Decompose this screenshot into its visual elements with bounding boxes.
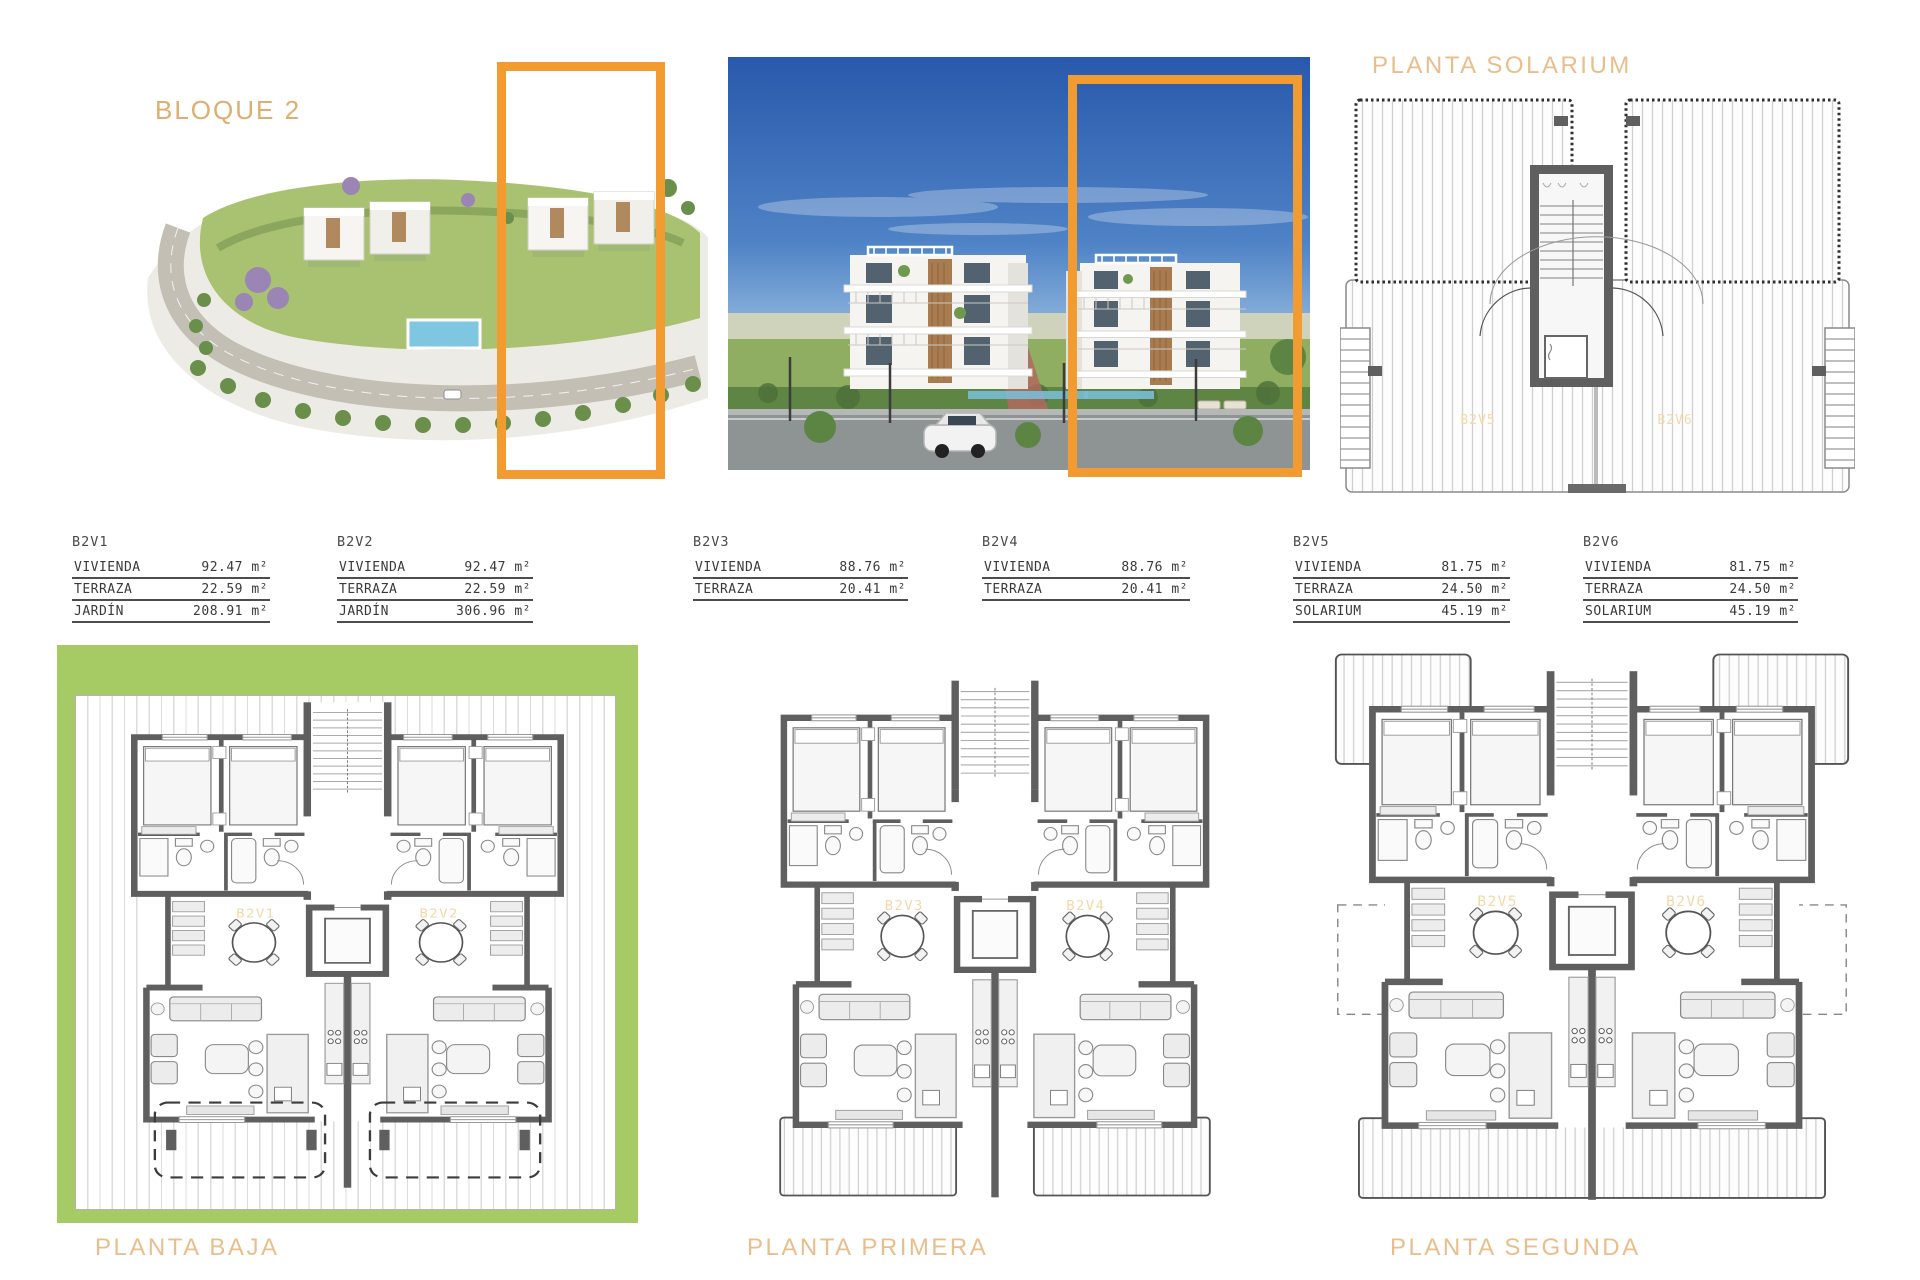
- unit-id: B2V6: [1583, 534, 1798, 550]
- floor-plan-baja-garden: B2V1 B2V2: [57, 645, 638, 1223]
- baja-left-unit-label: B2V1: [236, 907, 275, 921]
- table-row: TERRAZA 24.50 m²: [1583, 579, 1798, 601]
- floor-plan-baja-svg: B2V1 B2V2: [95, 681, 600, 1209]
- brochure-page: BLOQUE 2: [0, 0, 1920, 1280]
- facade-building-left: [844, 247, 1032, 389]
- unit-id: B2V1: [72, 534, 270, 550]
- solarium-left-unit-label: B2V5: [1460, 413, 1495, 428]
- area-table-b2v3: B2V3 VIVIENDA 88.76 m² TERRAZA 20.41 m²: [693, 534, 908, 601]
- unit-id: B2V2: [337, 534, 533, 550]
- table-row: SOLARIUM 45.19 m²: [1293, 601, 1510, 623]
- segunda-right-unit-label: B2V6: [1666, 894, 1707, 910]
- highlight-rect-facade: [1068, 75, 1302, 477]
- floor-plan-solarium: B2V5 B2V6: [1340, 88, 1855, 506]
- floor-plan-primera-svg: B2V3 B2V4: [745, 658, 1245, 1220]
- table-row: VIVIENDA 92.47 m²: [72, 557, 270, 579]
- plan-title-baja: PLANTA BAJA: [95, 1234, 279, 1262]
- unit-id: B2V4: [982, 534, 1190, 550]
- table-row: SOLARIUM 45.19 m²: [1583, 601, 1798, 623]
- table-row: VIVIENDA 81.75 m²: [1583, 557, 1798, 579]
- segunda-left-unit-label: B2V5: [1477, 894, 1518, 910]
- primera-left-unit-label: B2V3: [885, 898, 924, 914]
- area-table-b2v6: B2V6 VIVIENDA 81.75 m² TERRAZA 24.50 m² …: [1583, 534, 1798, 623]
- plan-title-primera: PLANTA PRIMERA: [747, 1234, 988, 1262]
- baja-right-unit-label: B2V2: [419, 907, 458, 921]
- block-title: BLOQUE 2: [155, 95, 301, 126]
- floor-plan-segunda-svg: B2V5 B2V6: [1332, 648, 1852, 1223]
- unit-id: B2V5: [1293, 534, 1510, 550]
- table-row: VIVIENDA 81.75 m²: [1293, 557, 1510, 579]
- plan-title-segunda: PLANTA SEGUNDA: [1390, 1234, 1641, 1262]
- table-row: JARDÍN 208.91 m²: [72, 601, 270, 623]
- primera-right-unit-label: B2V4: [1066, 898, 1105, 914]
- table-row: TERRAZA 20.41 m²: [693, 579, 908, 601]
- solarium-right-unit-label: B2V6: [1657, 413, 1692, 428]
- area-table-b2v4: B2V4 VIVIENDA 88.76 m² TERRAZA 20.41 m²: [982, 534, 1190, 601]
- area-table-b2v2: B2V2 VIVIENDA 92.47 m² TERRAZA 22.59 m² …: [337, 534, 533, 623]
- table-row: VIVIENDA 92.47 m²: [337, 557, 533, 579]
- table-row: TERRAZA 22.59 m²: [72, 579, 270, 601]
- table-row: TERRAZA 22.59 m²: [337, 579, 533, 601]
- plan-title-solarium: PLANTA SOLARIUM: [1372, 52, 1632, 80]
- table-row: VIVIENDA 88.76 m²: [982, 557, 1190, 579]
- unit-id: B2V3: [693, 534, 908, 550]
- aerial-car: [444, 390, 461, 399]
- table-row: TERRAZA 20.41 m²: [982, 579, 1190, 601]
- highlight-rect-aerial: [497, 62, 665, 479]
- table-row: TERRAZA 24.50 m²: [1293, 579, 1510, 601]
- table-row: JARDÍN 306.96 m²: [337, 601, 533, 623]
- table-row: VIVIENDA 88.76 m²: [693, 557, 908, 579]
- area-table-b2v5: B2V5 VIVIENDA 81.75 m² TERRAZA 24.50 m² …: [1293, 534, 1510, 623]
- area-table-b2v1: B2V1 VIVIENDA 92.47 m² TERRAZA 22.59 m² …: [72, 534, 270, 623]
